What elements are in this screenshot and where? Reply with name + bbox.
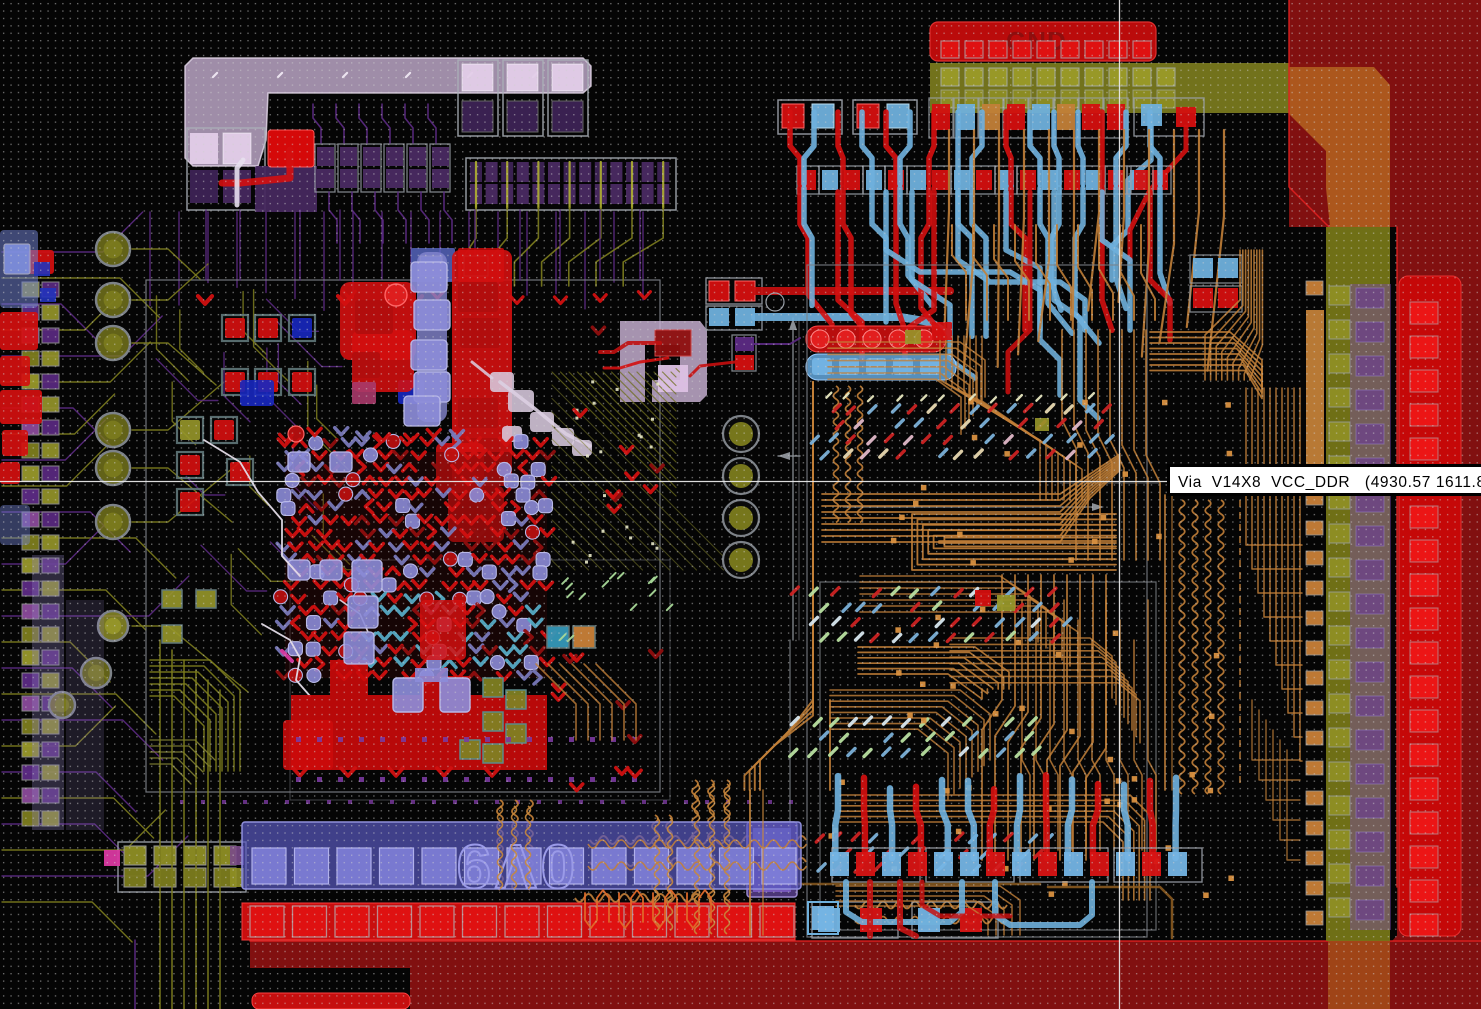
svg-text:Via V14X8 VCC_DDR (4930.57: Via V14X8 VCC_DDR (4930.57 1611.8 (1178, 474, 1481, 491)
